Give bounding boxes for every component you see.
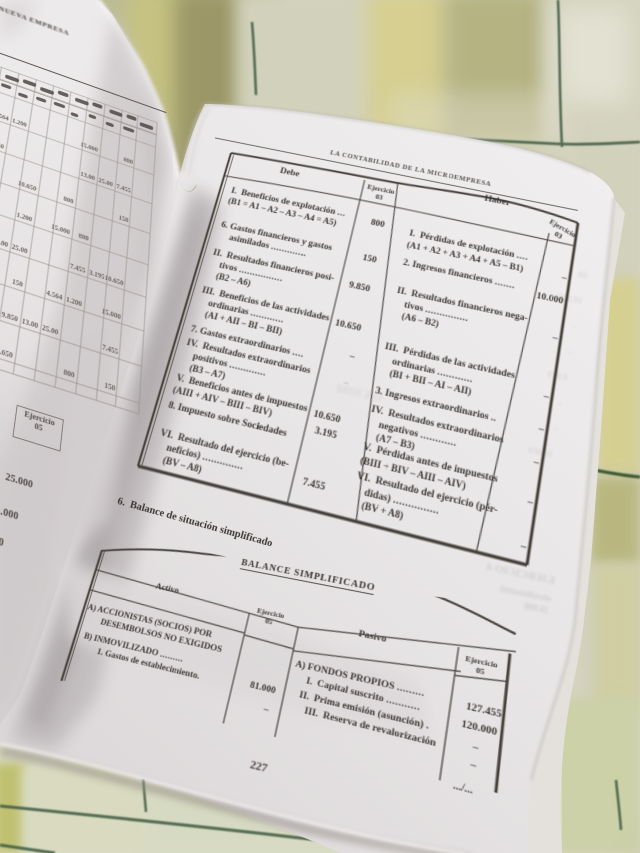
svg-text:25.00: 25.00 — [11, 244, 28, 256]
svg-text:13.00: 13.00 — [80, 171, 95, 182]
svg-text:7.455: 7.455 — [116, 184, 131, 195]
svg-text:4.564: 4.564 — [0, 112, 9, 123]
svg-text:10.650: 10.650 — [17, 181, 36, 194]
svg-text:800: 800 — [63, 369, 75, 380]
svg-text:1.200: 1.200 — [16, 212, 32, 224]
svg-text:7.455: 7.455 — [102, 344, 119, 357]
svg-text:1.200: 1.200 — [66, 296, 83, 308]
svg-text:15.000: 15.000 — [51, 224, 71, 237]
svg-text:7.455: 7.455 — [69, 263, 85, 275]
svg-text:150: 150 — [104, 382, 116, 393]
svg-text:150: 150 — [11, 279, 23, 290]
svg-text:25.00: 25.00 — [98, 178, 113, 189]
svg-text:10.650: 10.650 — [0, 346, 13, 360]
svg-text:3.195: 3.195 — [89, 270, 105, 282]
svg-text:13.00: 13.00 — [0, 237, 9, 249]
svg-text:9.850: 9.850 — [0, 140, 4, 151]
svg-text:10.650: 10.650 — [104, 275, 123, 288]
svg-text:9.850: 9.850 — [1, 311, 19, 324]
svg-text:15.000: 15.000 — [101, 308, 121, 322]
svg-text:1.200: 1.200 — [12, 118, 28, 129]
svg-text:4.564: 4.564 — [46, 290, 63, 302]
svg-text:13.00: 13.00 — [21, 318, 38, 331]
svg-text:25.00: 25.00 — [41, 325, 58, 338]
